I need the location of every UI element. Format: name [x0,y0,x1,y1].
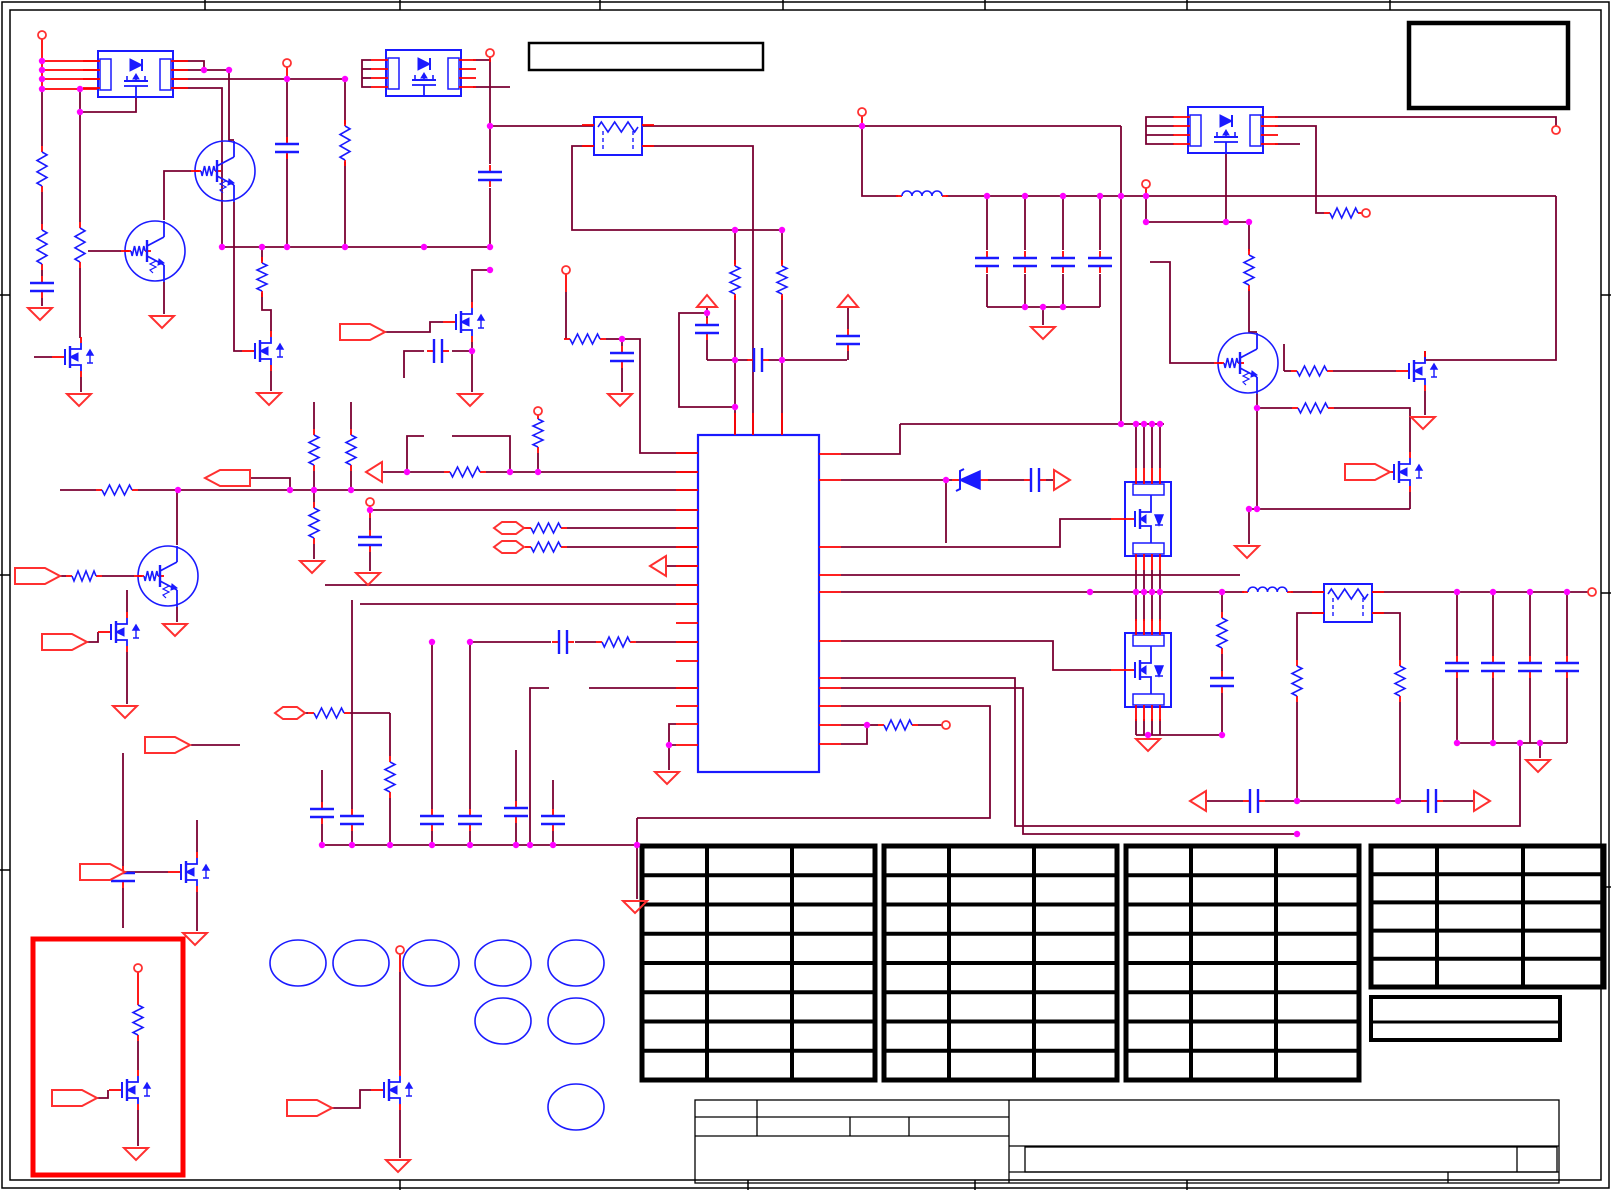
junction-dot [1517,740,1523,746]
port-bidirectional[interactable] [494,541,524,553]
terminal-pin[interactable] [562,266,570,274]
fuse-filter[interactable] [582,117,654,155]
junction-dot [1149,421,1155,427]
ground-symbol[interactable] [386,1160,410,1172]
junction-dot [704,310,710,316]
junction-dot [1141,421,1147,427]
ground-symbol[interactable] [124,1148,148,1160]
junction-dot [1454,589,1460,595]
junction-dot [1040,304,1046,310]
mosfet-package[interactable] [371,50,476,96]
resistor[interactable] [133,999,143,1041]
capacitor[interactable] [541,809,565,831]
junction-dot [319,842,325,848]
resistor[interactable] [37,224,47,270]
junction-dot [550,842,556,848]
inductor[interactable] [896,191,948,196]
junction-dot [487,267,493,273]
junction-dot [1254,506,1260,512]
bjt-transistor[interactable] [191,141,255,202]
wire[interactable] [82,97,136,112]
wire[interactable] [669,724,676,745]
ground-symbol[interactable] [356,573,380,585]
resistor[interactable] [878,720,918,730]
junction-dot [1022,193,1028,199]
capacitor[interactable] [1088,251,1112,273]
junction-dot [1143,219,1149,225]
junction-dot [367,507,373,513]
capacitor[interactable] [275,137,299,159]
resistor[interactable] [1292,403,1334,413]
junction-dot [39,86,45,92]
wire[interactable] [622,339,698,453]
junction-dot [404,469,410,475]
junction-dot [732,227,738,233]
capacitor[interactable] [695,318,719,340]
junction-dot [1537,740,1543,746]
mosfet[interactable] [371,1070,412,1110]
terminal-pin[interactable] [858,108,866,116]
mosfet[interactable] [1396,351,1437,391]
terminal-pin[interactable] [366,498,374,506]
terminal-pin[interactable] [534,407,542,415]
junction-dot [348,487,354,493]
bus-ellipse[interactable] [548,998,604,1044]
wire[interactable] [841,519,1111,547]
wire[interactable] [841,678,1520,826]
junction-dot [349,842,355,848]
junction-dot [1060,304,1066,310]
resistor[interactable] [1244,249,1254,291]
junction-dot [175,487,181,493]
wire[interactable] [1275,126,1324,213]
junction-dot [1157,421,1163,427]
wire[interactable] [1425,196,1556,360]
wire[interactable] [173,61,204,70]
terminal-pin[interactable] [38,31,46,39]
terminal-pin[interactable] [942,721,950,729]
wire[interactable] [637,706,990,818]
bus-ellipse[interactable] [333,940,389,986]
packages-layer[interactable] [83,50,1278,721]
ground-symbol[interactable] [608,394,632,406]
port-arrow-right[interactable] [340,324,385,340]
junction-dot [1294,798,1300,804]
mosfet-package[interactable] [1173,107,1278,153]
junction-dot [287,487,293,493]
junction-dot [1149,589,1155,595]
junction-dot [1219,589,1225,595]
resistor[interactable] [66,571,102,581]
junction-dot [1157,589,1163,595]
capacitor[interactable] [975,251,999,273]
capacitor[interactable] [420,809,444,831]
junction-dot [1141,589,1147,595]
junction-dot [507,469,513,475]
mosfet[interactable] [168,852,209,892]
resistor[interactable] [1395,660,1405,702]
resistor[interactable] [1291,366,1333,376]
wire[interactable] [1334,408,1410,452]
bjts-layer[interactable] [121,141,1278,607]
note-box [1409,23,1568,108]
junction-dot [943,477,949,483]
junction-dot [342,76,348,82]
capacitor[interactable] [30,276,54,298]
junction-dot [513,842,519,848]
junction-dot [1118,193,1124,199]
resistor[interactable] [385,756,395,798]
junction-dot [619,336,625,342]
capacitor[interactable] [836,329,860,351]
symbols-layer[interactable] [28,295,1550,1172]
note-box [529,23,1568,108]
resistor[interactable] [340,120,350,166]
bjt-transistor[interactable] [121,221,185,282]
junction-dot [1246,219,1252,225]
resistor[interactable] [309,429,319,471]
junction-dot [1118,421,1124,427]
mosfets-layer[interactable] [52,302,1437,1110]
junction-dot [219,244,225,250]
ground-symbol[interactable] [655,772,679,784]
bus-ellipse[interactable] [403,940,459,986]
ground-symbol[interactable] [113,706,137,718]
capacitor[interactable] [1518,656,1542,678]
junction-dot [201,67,207,73]
mosfet-package[interactable] [1111,468,1171,570]
ports-layer[interactable] [15,324,1490,1116]
capacitor[interactable] [310,802,334,824]
junction-dot [259,244,265,250]
junction-dot [1143,193,1149,199]
capacitor[interactable] [1210,671,1234,693]
wire[interactable] [642,146,753,435]
resistor[interactable] [525,542,567,552]
junction-dot [77,86,83,92]
junction-dot [1087,589,1093,595]
junction-dot [666,742,672,748]
resistor[interactable] [308,708,350,718]
junction-dot [1133,421,1139,427]
wire[interactable] [229,70,234,140]
ground-symbol[interactable] [1136,739,1160,751]
capacitor[interactable] [552,630,574,654]
junction-dot [1060,193,1066,199]
table [1371,846,1604,987]
mosfet[interactable] [109,1070,150,1110]
port-arrow-right[interactable] [80,864,125,880]
junction-dot [1145,732,1151,738]
port-arrow-right[interactable] [52,1090,97,1106]
port-arrow-right[interactable] [42,634,87,650]
capacitor[interactable] [358,530,382,552]
bus-ellipse[interactable] [475,940,531,986]
ground-symbol[interactable] [183,933,207,945]
wire[interactable] [1150,262,1214,363]
ground-symbol[interactable] [67,394,91,406]
junction-dot [634,842,640,848]
inductor[interactable] [1242,587,1293,592]
terminal-pin[interactable] [1362,209,1370,217]
junction-dot [39,76,45,82]
terminal-pin[interactable] [1552,126,1560,134]
mosfet-package[interactable] [1111,619,1171,721]
junction-dot [1395,798,1401,804]
port-arrow-right[interactable] [1345,464,1390,480]
junction-dot [487,123,493,129]
junction-dot [429,842,435,848]
junction-dot [1490,589,1496,595]
junction-dot [284,76,290,82]
junction-dot [284,244,290,250]
wire[interactable] [1249,289,1257,332]
mosfet[interactable] [52,337,93,377]
ground-symbol[interactable] [257,393,281,405]
port-bidirectional[interactable] [494,522,524,534]
wire[interactable] [530,688,549,845]
terminal-pin[interactable] [134,964,142,972]
wire[interactable] [262,293,271,331]
junction-dot [311,487,317,493]
junction-dot [1246,506,1252,512]
ground-symbol[interactable] [1526,760,1550,772]
capacitor[interactable] [610,346,634,368]
junction-dot [864,722,870,728]
junction-dot [77,109,83,115]
capacitor[interactable] [1013,251,1037,273]
resistor[interactable] [564,334,606,344]
junction-dot [387,842,393,848]
ground-symbol[interactable] [150,316,174,328]
junction-dot [342,244,348,250]
port-triangle-right[interactable] [1474,791,1490,811]
port-arrow-right[interactable] [287,1100,332,1116]
diodes-layer[interactable] [952,469,988,491]
terminal-pin[interactable] [1142,180,1150,188]
terminal-pin[interactable] [283,59,291,67]
resistor[interactable] [730,260,740,300]
ground-symbol[interactable] [28,308,52,320]
resistor[interactable] [346,429,356,471]
highlight-box[interactable] [33,939,183,1175]
junction-dot [469,348,475,354]
ground-symbol[interactable] [300,561,324,573]
resistor[interactable] [1217,612,1227,654]
port-arrow-right[interactable] [15,568,60,584]
capacitor[interactable] [458,809,482,831]
title-block [695,1100,1559,1183]
note-box [529,43,763,70]
wire[interactable] [862,126,898,196]
junction-dot [39,67,45,73]
junction-dot [779,357,785,363]
wire[interactable] [234,202,242,351]
power-arrow[interactable] [697,295,717,307]
junction-dot [732,357,738,363]
inductors-layer[interactable] [896,191,1293,592]
junction-dot [535,469,541,475]
wire[interactable] [572,146,782,230]
resistor[interactable] [525,523,567,533]
bus-ellipse[interactable] [475,998,531,1044]
ground-symbol[interactable] [1235,546,1259,558]
terminal-pin[interactable] [396,946,404,954]
wire[interactable] [841,641,1111,670]
wire[interactable] [1297,613,1324,660]
wire[interactable] [1372,613,1400,660]
wire[interactable] [251,478,290,490]
terminal-pin[interactable] [1588,588,1596,596]
bus-ellipse[interactable] [548,1084,604,1130]
resistor[interactable] [1292,660,1302,702]
ic-chip[interactable] [676,413,841,772]
capacitor[interactable] [340,809,364,831]
capacitor[interactable] [504,801,528,823]
capacitor[interactable] [1024,468,1046,492]
capacitor[interactable] [1445,656,1469,678]
resistor[interactable] [309,502,319,544]
resistor[interactable] [533,413,543,453]
junction-dot [859,123,865,129]
mosfet[interactable] [98,612,139,652]
junction-dot [779,227,785,233]
junction-dot [1133,589,1139,595]
ground-symbol[interactable] [1031,327,1055,339]
parts-tables [642,846,1604,1080]
wire[interactable] [841,688,1297,834]
junction-dot [429,639,435,645]
junction-dot [1454,740,1460,746]
mosfet[interactable] [242,331,283,371]
wire[interactable] [362,60,371,87]
junction-dot [1022,304,1028,310]
table [642,846,875,1080]
port-triangle-left[interactable] [650,556,666,576]
wire[interactable] [404,351,424,378]
wire[interactable] [472,270,490,302]
wire[interactable] [87,632,98,642]
port-bidirectional[interactable] [275,707,305,719]
capacitor[interactable] [1555,656,1579,678]
junction-dot [467,842,473,848]
junction-dot [1254,405,1260,411]
port-triangle-left[interactable] [366,462,382,482]
port-arrow-right[interactable] [145,737,190,753]
junction-dot [226,67,232,73]
mosfet-package[interactable] [83,51,188,97]
schematic-sheet [0,0,1611,1190]
capacitor[interactable] [1421,789,1443,813]
fuse-filter[interactable] [1312,584,1384,622]
resistor[interactable] [1324,208,1364,218]
junction-dot [1490,740,1496,746]
wire[interactable] [97,1090,108,1098]
port-triangle-left[interactable] [1190,791,1206,811]
junction-dot [39,58,45,64]
wire[interactable] [841,725,867,744]
junction-dot [1294,831,1300,837]
resistor[interactable] [75,222,85,268]
ground-symbol[interactable] [163,624,187,636]
wire[interactable] [1275,117,1556,126]
wire[interactable] [1146,117,1174,144]
port-arrow-left[interactable] [205,470,250,486]
wire[interactable] [407,436,424,472]
resistor[interactable] [444,467,486,477]
power-arrow[interactable] [838,295,858,307]
ic-layer[interactable] [676,413,841,772]
capacitor[interactable] [478,165,502,187]
junction-dot [487,244,493,250]
bjt-transistor[interactable] [134,546,198,607]
wire[interactable] [841,424,900,454]
wire[interactable] [452,436,510,472]
junction-dot [1564,589,1570,595]
junction-dot [527,842,533,848]
resistor[interactable] [96,485,138,495]
bus-ellipse[interactable] [270,940,326,986]
capacitor[interactable] [1243,789,1265,813]
capacitor[interactable] [427,339,449,363]
junction-dot [467,639,473,645]
resistor[interactable] [596,637,636,647]
resistor[interactable] [257,257,267,297]
zener-diode[interactable] [952,469,988,491]
ground-symbol[interactable] [458,394,482,406]
capacitor[interactable] [1051,251,1075,273]
ground-symbol[interactable] [1411,417,1435,429]
capacitor[interactable] [747,348,769,372]
schematic-canvas[interactable] [0,0,1611,1190]
junction-dot [1097,193,1103,199]
wire[interactable] [385,322,443,332]
capacitor[interactable] [1481,656,1505,678]
table [884,846,1117,1080]
junction-dot [1527,589,1533,595]
table [1126,846,1359,1080]
junction-dot [732,404,738,410]
wire[interactable] [164,171,191,220]
bjt-transistor[interactable] [1214,333,1278,394]
terminal-pin[interactable] [486,49,494,57]
junction-dot [1219,732,1225,738]
mosfet[interactable] [443,302,484,342]
nodes-layer[interactable] [38,31,1596,972]
port-triangle-right[interactable] [1054,470,1070,490]
resistor[interactable] [777,260,787,300]
resistor[interactable] [37,146,47,192]
junction-dot [1223,219,1229,225]
bus-ellipse[interactable] [548,940,604,986]
wire[interactable] [332,1090,371,1108]
junction-dot [421,244,427,250]
junction-dot [984,193,990,199]
